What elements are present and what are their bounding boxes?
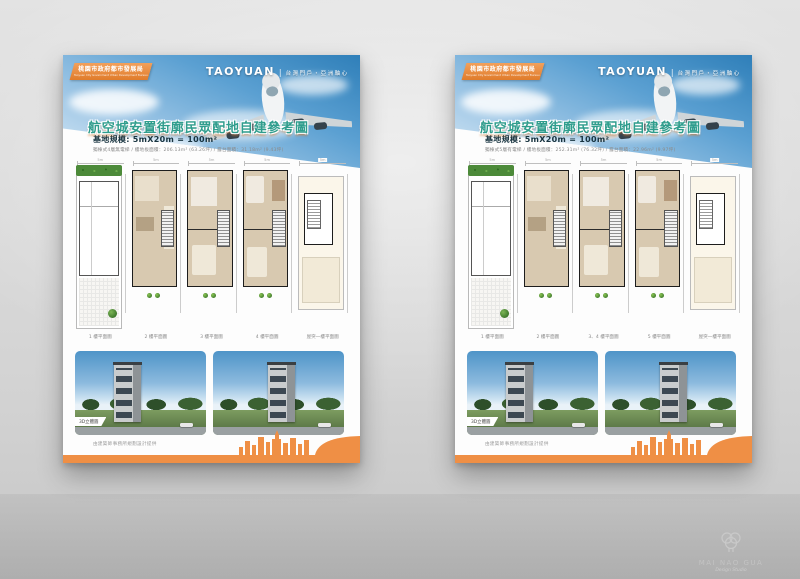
plan-frame: [297, 166, 348, 329]
airplane-icon: [594, 69, 744, 155]
plan-card: [187, 170, 233, 287]
furniture-graphic: [272, 180, 285, 201]
plan-dim-label: 5m: [207, 158, 217, 162]
plan-frame: [523, 166, 574, 329]
plan-dim-line: 5m: [580, 159, 627, 166]
plan-label: 4 樓平面圖: [242, 329, 293, 347]
plan-dim-line: [180, 174, 181, 313]
bush-graphic: [108, 309, 117, 318]
bush-graphic: [500, 309, 509, 318]
render-car-graphic: [180, 423, 193, 427]
render-building: [114, 364, 141, 422]
render-building: [506, 364, 533, 422]
render-tag-3d: 3D立體圖: [467, 417, 498, 426]
render-photo: [605, 351, 736, 435]
render-car-graphic: [572, 423, 585, 427]
plant-dot: [203, 293, 208, 298]
plan-label: 3 樓平面圖: [186, 329, 237, 347]
plan-dim-label: 5m: [710, 158, 720, 162]
plan-label: 1 樓平面圖: [467, 329, 518, 347]
room-patch: [583, 177, 609, 206]
poster-title: 航空城安置街廓民眾配地自建參考圖: [480, 117, 701, 136]
plan-label: 2 樓平面圖: [131, 329, 182, 347]
render-photo: 3D立體圖: [75, 351, 206, 435]
render-building: [660, 364, 687, 422]
plan-walls-graphic: [79, 181, 119, 276]
paving-grid-graphic: [79, 278, 119, 326]
plan-card: [132, 170, 178, 287]
plant-dot: [147, 293, 152, 298]
bureau-name-label: 桃園市政府都市發展局: [462, 67, 544, 74]
brand-row: TAOYUAN | 台灣門戶・亞洲軸心: [598, 65, 741, 78]
plan-dim-label: 5m: [262, 158, 272, 162]
plan-frame: [689, 166, 740, 329]
plants-row: [634, 293, 681, 301]
stair-graphic: [217, 210, 230, 247]
brand-tagline: 台灣門戶・亞洲軸心: [678, 69, 741, 77]
plan-dim-label: 5m: [654, 158, 664, 162]
plan-dim-line: 5m: [299, 159, 346, 166]
roof-terrace-graphic: [694, 257, 732, 304]
brand-wordmark: TAOYUAN: [598, 65, 667, 78]
watermark-brand: MAI NAO GUA: [676, 559, 786, 567]
plant-dot: [547, 293, 552, 298]
roof-stair-box-graphic: [304, 193, 333, 245]
plan-card: [243, 170, 289, 287]
plan-dim-label: 5m: [95, 158, 105, 162]
brand-divider: |: [279, 68, 282, 77]
furniture-graphic: [136, 217, 153, 231]
studio-wall-scene: 桃園市政府都市發展局 Taoyuan City Government Urban…: [0, 0, 800, 579]
brand-row: TAOYUAN | 台灣門戶・亞洲軸心: [206, 65, 349, 78]
plan-label: 1 樓平面圖: [75, 329, 126, 347]
paving-grid-graphic: [471, 278, 511, 326]
plan-card: [635, 170, 681, 287]
plan-card: [76, 166, 122, 329]
watermark: MAI NAO GUA Design Studio: [676, 529, 786, 573]
plan-card: [690, 176, 736, 310]
skyline-graphic: [455, 429, 752, 463]
roof-stair-box-graphic: [696, 193, 725, 245]
poster-title: 航空城安置街廓民眾配地自建參考圖: [88, 117, 309, 136]
stair-graphic: [664, 210, 677, 247]
site-detail-text: 獨棟式4層無電梯 / 樓地板面積：206.13m² (63.26坪) / 露台面…: [93, 147, 283, 153]
watermark-subtitle: Design Studio: [676, 568, 786, 573]
plants-row: [186, 293, 233, 301]
plan-dim-line: [683, 174, 684, 313]
plan-card: [298, 176, 344, 310]
plan-dim-line: [236, 174, 237, 313]
render-car-graphic: [318, 423, 331, 427]
plan-frame: [75, 166, 126, 329]
plant-dot: [259, 293, 264, 298]
plan-dim-line: 5m: [525, 159, 572, 166]
plant-dot: [211, 293, 216, 298]
plan-column: 5m 1 樓平面圖: [467, 159, 518, 347]
bureau-name-label: 桃園市政府都市發展局: [70, 67, 152, 74]
bed-graphic: [246, 176, 263, 204]
plan-dim-line: 5m: [244, 159, 291, 166]
room-patch: [527, 176, 551, 201]
plan-column: 5m 5 樓平面圖: [634, 159, 685, 347]
plan-label: 3、4 樓平面圖: [578, 329, 629, 347]
hedge-graphic: [76, 165, 122, 176]
bureau-badge-text: 桃園市政府都市發展局 Taoyuan City Government Urban…: [462, 67, 544, 77]
bed-graphic: [639, 247, 659, 277]
plan-dim-line: 5m: [636, 159, 683, 166]
render-building: [268, 364, 295, 422]
plan-dim-line: [517, 174, 518, 313]
plant-dot: [603, 293, 608, 298]
furniture-graphic: [528, 217, 545, 231]
cloud-graphic: [69, 89, 159, 115]
plant-dot: [267, 293, 272, 298]
plan-dim-line: 5m: [691, 159, 738, 166]
bed-graphic: [584, 245, 608, 275]
plan-dim-line: [125, 174, 126, 313]
render-tag-3d: 3D立體圖: [75, 417, 106, 426]
plan-label: 屋突一樓平面圖: [297, 329, 348, 347]
brand-divider: |: [671, 68, 674, 77]
plans-row: 5m 1 樓平面圖 5m: [75, 159, 348, 347]
bureau-badge: 桃園市政府都市發展局 Taoyuan City Government Urban…: [462, 63, 545, 80]
bureau-name-en-label: Taoyuan City Government Urban Developmen…: [466, 73, 540, 76]
plan-column: 5m 3、4 樓平面圖: [578, 159, 629, 347]
plan-column: 5m 4 樓平面圖: [242, 159, 293, 347]
stair-graphic: [609, 210, 622, 247]
brand-wordmark: TAOYUAN: [206, 65, 275, 78]
plan-dim-label: 5m: [487, 158, 497, 162]
plan-dim-label: 5m: [599, 158, 609, 162]
render-car-graphic: [710, 423, 723, 427]
roof-terrace-graphic: [302, 257, 340, 304]
plan-dim-line: [572, 174, 573, 313]
render-photo: 3D立體圖: [467, 351, 598, 435]
plan-frame: [634, 166, 685, 329]
poster: 桃園市政府都市發展局 Taoyuan City Government Urban…: [455, 55, 752, 463]
plan-frame: [131, 166, 182, 329]
plan-column: 5m 3 樓平面圖: [186, 159, 237, 347]
plan-column: 5m 1 樓平面圖: [75, 159, 126, 347]
plan-dim-line: [291, 174, 292, 313]
plan-dim-line: 5m: [188, 159, 235, 166]
plants-row: [131, 293, 178, 301]
plant-dot: [651, 293, 656, 298]
site-detail-text: 獨棟式5層有電梯 / 樓地板面積：252.31m² (76.32坪) / 露台面…: [485, 147, 675, 153]
bed-graphic: [638, 176, 655, 204]
bureau-badge: 桃園市政府都市發展局 Taoyuan City Government Urban…: [70, 63, 153, 80]
bed-graphic: [247, 247, 267, 277]
plan-label: 5 樓平面圖: [634, 329, 685, 347]
plan-dim-line: [347, 174, 348, 313]
plan-frame: [186, 166, 237, 329]
plan-frame: [242, 166, 293, 329]
plant-dot: [595, 293, 600, 298]
plan-dim-line: 5m: [133, 159, 180, 166]
plant-dot: [659, 293, 664, 298]
cloud-graphic: [461, 89, 551, 115]
plan-dim-label: 5m: [151, 158, 161, 162]
stair-graphic: [272, 210, 285, 247]
plant-dot: [155, 293, 160, 298]
bureau-name-en-label: Taoyuan City Government Urban Developmen…: [74, 73, 148, 76]
renders-row: 3D立體圖: [467, 351, 736, 435]
plan-column: 5m 屋突一樓平面圖: [297, 159, 348, 347]
plan-dim-label: 5m: [318, 158, 328, 162]
brand-tagline: 台灣門戶・亞洲軸心: [286, 69, 349, 77]
plan-column: 5m 屋突一樓平面圖: [689, 159, 740, 347]
plant-dot: [539, 293, 544, 298]
plan-card: [579, 170, 625, 287]
brain-icon: [718, 529, 744, 553]
plan-dim-label: 5m: [543, 158, 553, 162]
plants-row: [578, 293, 625, 301]
plan-card: [468, 166, 514, 329]
furniture-graphic: [664, 180, 677, 201]
stair-graphic: [553, 210, 566, 247]
airplane-icon: [202, 69, 352, 155]
plan-dim-line: [739, 174, 740, 313]
bureau-badge-text: 桃園市政府都市發展局 Taoyuan City Government Urban…: [70, 67, 152, 77]
render-photo: [213, 351, 344, 435]
renders-row: 3D立體圖: [75, 351, 344, 435]
plants-row: [242, 293, 289, 301]
plan-column: 5m 2 樓平面圖: [523, 159, 574, 347]
room-patch: [135, 176, 159, 201]
plants-row: [523, 293, 570, 301]
plan-dim-line: [628, 174, 629, 313]
plan-label: 2 樓平面圖: [523, 329, 574, 347]
stair-graphic: [161, 210, 174, 247]
plan-column: 5m 2 樓平面圖: [131, 159, 182, 347]
plan-card: [524, 170, 570, 287]
hedge-graphic: [468, 165, 514, 176]
bed-graphic: [192, 245, 216, 275]
plan-walls-graphic: [471, 181, 511, 276]
skyline-graphic: [63, 429, 360, 463]
plan-label: 屋突一樓平面圖: [689, 329, 740, 347]
plan-frame: [467, 166, 518, 329]
room-patch: [191, 177, 217, 206]
plans-row: 5m 1 樓平面圖 5m: [467, 159, 740, 347]
poster: 桃園市政府都市發展局 Taoyuan City Government Urban…: [63, 55, 360, 463]
plan-frame: [578, 166, 629, 329]
